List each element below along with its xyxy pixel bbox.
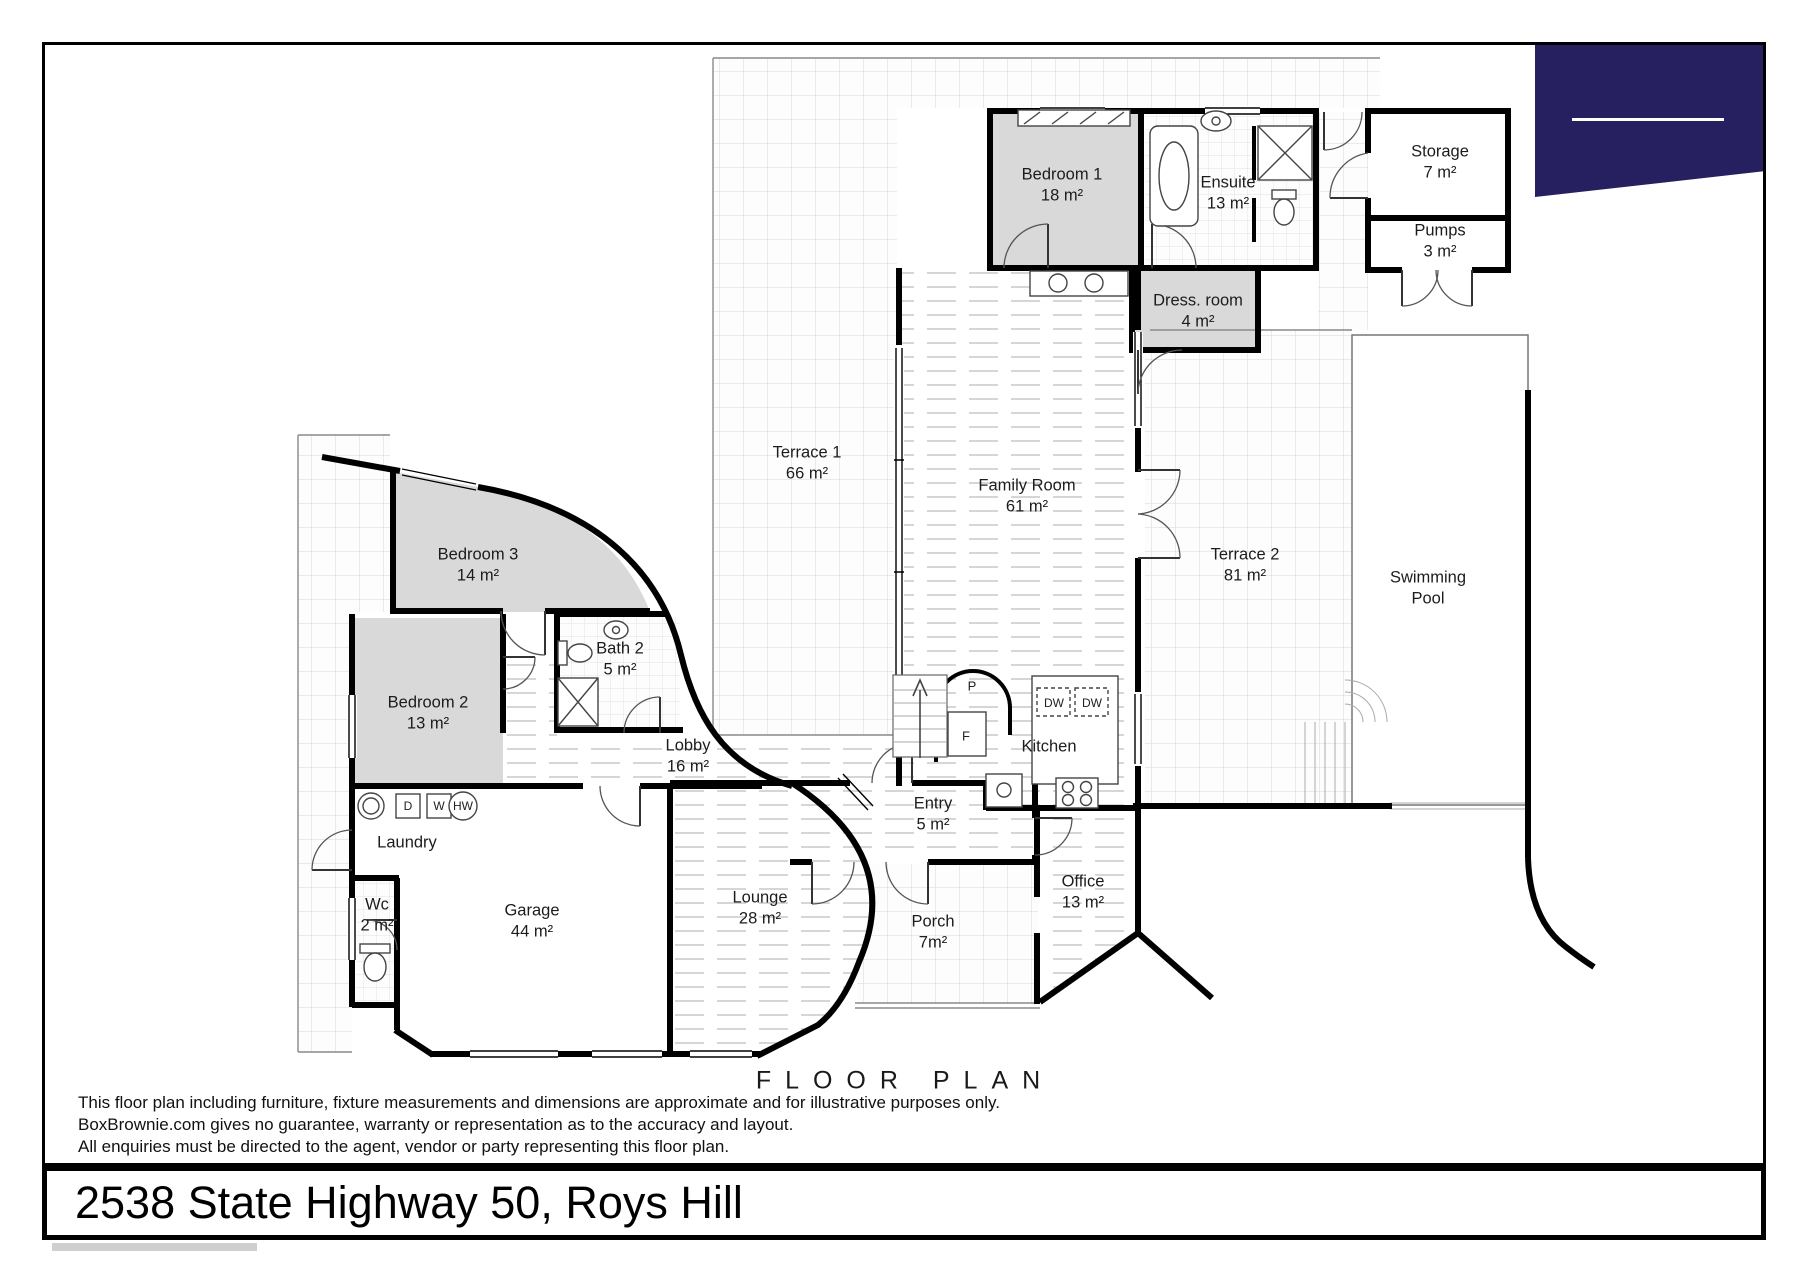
ensuite-basin [1201,111,1231,131]
room-label-storage: Storage7 m² [1411,142,1469,185]
room-label-family-room: Family Room61 m² [978,476,1075,519]
room-label-porch: Porch7m² [911,912,954,955]
washer-label: W [433,799,444,813]
room-label-terrace-1: Terrace 166 m² [773,443,842,486]
room-label-bedroom-3: Bedroom 314 m² [438,545,519,588]
door-pumps-double [1402,270,1472,306]
room-label-dress-room: Dress. room4 m² [1153,291,1243,334]
room-label-ensuite: Ensuite13 m² [1200,173,1255,216]
kitchen-island [1032,676,1118,784]
room-label-garage: Garage44 m² [504,901,559,944]
room-label-bedroom-1: Bedroom 118 m² [1022,165,1103,208]
property-address: 2538 State Highway 50, Roys Hill [75,1177,743,1229]
room-label-bath-2: Bath 25 m² [596,639,644,682]
laundry-tub [358,793,384,819]
stairs [893,675,947,758]
fridge-label: F [962,729,970,744]
disclaimer-text: This floor plan including furniture, fix… [78,1092,1000,1158]
dishwasher-label-2: DW [1082,696,1102,710]
wardrobe [1018,110,1130,126]
hot-water-label: HW [453,799,473,813]
room-label-laundry: Laundry [377,832,437,853]
room-label-entry: Entry5 m² [914,794,953,837]
room-label-pumps: Pumps3 m² [1414,221,1465,264]
ensuite-shower [1258,126,1312,180]
dryer-label: D [404,799,413,813]
room-label-swimming-pool: SwimmingPool [1390,568,1466,611]
room-label-terrace-2: Terrace 281 m² [1211,545,1280,588]
disclaimer-line-3: All enquiries must be directed to the ag… [78,1136,1000,1158]
disclaimer-line-2: BoxBrownie.com gives no guarantee, warra… [78,1114,1000,1136]
door-bedroom-3 [501,611,545,655]
disclaimer-line-1: This floor plan including furniture, fix… [78,1092,1000,1114]
floor-plan-page: Bedroom 118 m² Ensuite13 m² Storage7 m² … [0,0,1811,1280]
room-label-office: Office13 m² [1062,872,1105,915]
bath2-basin [604,621,628,639]
address-bar: 2538 State Highway 50, Roys Hill [42,1166,1766,1240]
room-label-kitchen: Kitchen [1021,736,1076,757]
ensuite-toilet [1272,190,1296,225]
bathtub [1150,126,1198,226]
room-label-wc: Wc2 m² [361,895,394,938]
brand-banner [1535,45,1766,197]
room-label-lounge: Lounge28 m² [732,888,787,931]
address-bar-shadow [52,1243,257,1251]
dresser-vanity [1030,271,1128,296]
banner-line [1572,118,1724,121]
kitchen-sink [986,774,1022,807]
door-lobby-garage [600,786,640,826]
room-label-lobby: Lobby16 m² [666,736,711,779]
dishwasher-label-1: DW [1044,696,1064,710]
bath2-shower [558,678,598,726]
pantry-label: P [968,679,977,694]
room-label-bedroom-2: Bedroom 213 m² [388,693,469,736]
stove [1056,778,1098,808]
